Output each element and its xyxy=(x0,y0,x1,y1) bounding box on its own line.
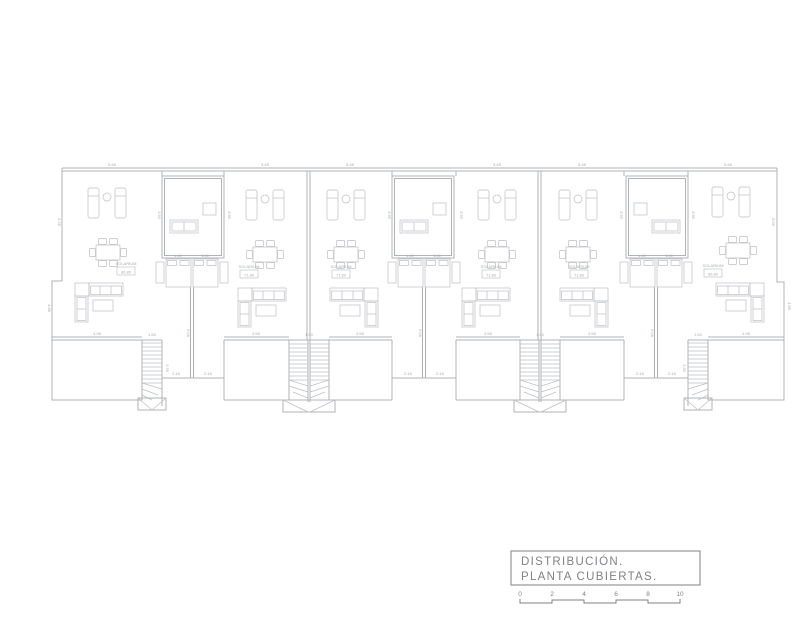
sofa-set-unit-4 xyxy=(462,288,510,327)
dining-set-unit-6 xyxy=(720,237,757,265)
dimension-label: 3.58 xyxy=(484,331,493,336)
dimension-label: 3.95 xyxy=(157,211,162,220)
scale-tick-10: 10 xyxy=(676,591,684,598)
dimension-label: 3.35 xyxy=(682,364,687,373)
stairs-units-4-5 xyxy=(514,340,566,412)
dimension-label: 2.15 xyxy=(668,371,677,376)
dimension-label: 4.98 xyxy=(742,331,751,336)
scale-tick-6: 6 xyxy=(614,591,618,598)
dimension-label: 5.08 xyxy=(418,329,423,338)
dimension-label: 4.88 xyxy=(47,304,52,313)
sofa-set-unit-1 xyxy=(75,283,123,322)
dimension-label: 5.08 xyxy=(650,329,655,338)
dimension-label: 5.48 xyxy=(108,162,117,167)
dimension-label: 1.50 xyxy=(694,332,703,337)
tower-a xyxy=(162,176,224,258)
dimension-label: 2.15 xyxy=(404,371,413,376)
dimension-label: 2.15 xyxy=(636,371,645,376)
svg-text:71.80: 71.80 xyxy=(486,273,497,278)
stairs-unit-6 xyxy=(684,340,712,410)
dimension-label: 4.88 xyxy=(787,302,792,311)
dimension-label: 5.48 xyxy=(493,162,502,167)
dimension-label: 3.95 xyxy=(387,211,392,220)
sun-loungers-unit-6 xyxy=(712,187,750,217)
scale-tick-0: 0 xyxy=(518,591,522,598)
dimension-label: 1.40 xyxy=(406,253,415,258)
solarium-label-unit-5: SOLARIUM 71.80 xyxy=(569,264,590,278)
sofa-set-unit-3 xyxy=(330,288,378,327)
sun-loungers-unit-4 xyxy=(478,190,516,220)
dimension-label: 2.15 xyxy=(172,371,181,376)
svg-text:86.80: 86.80 xyxy=(708,272,719,277)
dimension-label: 5.05 xyxy=(771,218,776,227)
sun-loungers-unit-5 xyxy=(559,190,597,220)
dimension-label: 3.95 xyxy=(459,211,464,220)
dim-layer: 5.485.485.485.485.485.481.401.401.401.40… xyxy=(47,162,792,376)
dimension-label: 5.48 xyxy=(346,162,355,167)
dimension-label: 4.98 xyxy=(93,331,102,336)
dimension-label: 5.08 xyxy=(186,329,191,338)
svg-text:71.80: 71.80 xyxy=(574,273,585,278)
scale-tick-8: 8 xyxy=(646,591,650,598)
dimension-label: 3.35 xyxy=(165,364,170,373)
svg-text:SOLARIUM: SOLARIUM xyxy=(239,264,260,269)
svg-text:SOLARIUM: SOLARIUM xyxy=(481,264,502,269)
svg-text:71.80: 71.80 xyxy=(244,273,255,278)
dimension-label: 3.58 xyxy=(356,331,365,336)
dimension-label: 5.48 xyxy=(724,162,733,167)
dimension-label: 2.15 xyxy=(436,371,445,376)
dimension-label: 3.58 xyxy=(252,331,261,336)
dimension-label: 1.50 xyxy=(148,332,157,337)
floor-plan-page: SOLARIUM 86.80 SOLARIUM 71.80 SOLARIUM 7… xyxy=(0,0,800,640)
dimension-label: 1.50 xyxy=(536,332,545,337)
solarium-label-unit-3: SOLARIUM 71.80 xyxy=(331,264,352,278)
dimension-label: 1.40 xyxy=(638,253,647,258)
solarium-label-unit-6: SOLARIUM 86.80 xyxy=(703,263,724,277)
solarium-label-unit-2: SOLARIUM 71.80 xyxy=(239,264,260,278)
dimension-label: 1.40 xyxy=(433,253,442,258)
sofa-set-unit-6 xyxy=(716,283,764,322)
dimension-label: 5.48 xyxy=(578,162,587,167)
sun-loungers-unit-2 xyxy=(246,190,284,220)
dimension-label: 3.95 xyxy=(227,211,232,220)
stairs-unit-1 xyxy=(138,340,166,410)
solarium-label-unit-1: SOLARIUM 86.80 xyxy=(116,261,137,275)
dimension-label: 2.15 xyxy=(204,371,213,376)
sofa-set-unit-2 xyxy=(238,288,286,327)
svg-text:SOLARIUM: SOLARIUM xyxy=(703,263,724,268)
svg-text:86.80: 86.80 xyxy=(121,270,132,275)
dimension-label: 1.40 xyxy=(665,253,674,258)
dimension-label: 3.58 xyxy=(588,331,597,336)
scale-bar: 0 2 4 6 8 10 xyxy=(518,591,684,603)
floor-plan-drawing: SOLARIUM 86.80 SOLARIUM 71.80 SOLARIUM 7… xyxy=(0,0,800,640)
tower-c xyxy=(626,176,688,258)
tower-b xyxy=(392,176,454,258)
dimension-label: 3.36 xyxy=(57,218,62,227)
stair-towers xyxy=(156,176,692,287)
svg-text:SOLARIUM: SOLARIUM xyxy=(116,261,137,266)
lower-terrace-2 xyxy=(224,337,289,400)
sun-loungers-unit-1 xyxy=(88,188,126,218)
svg-text:71.80: 71.80 xyxy=(336,273,347,278)
sun-beds-c xyxy=(620,259,692,287)
sun-beds-a xyxy=(156,259,228,287)
svg-text:SOLARIUM: SOLARIUM xyxy=(569,264,590,269)
lower-terrace-6 xyxy=(708,337,784,400)
title-line-1: DISTRIBUCIÓN. xyxy=(521,555,624,568)
scale-tick-2: 2 xyxy=(550,591,554,598)
scale-tick-4: 4 xyxy=(582,591,586,598)
dimension-label: 1.50 xyxy=(305,332,314,337)
dimension-label: 3.95 xyxy=(619,211,624,220)
title-line-2: PLANTA CUBIERTAS. xyxy=(521,571,658,583)
lower-terrace-4 xyxy=(456,337,520,400)
dimension-label: 1.40 xyxy=(201,253,210,258)
title-block: DISTRIBUCIÓN. PLANTA CUBIERTAS. 0 2 4 6 … xyxy=(511,551,700,603)
lower-terrace-1 xyxy=(52,337,142,400)
dimension-label: 3.95 xyxy=(691,211,696,220)
stairs-units-2-3 xyxy=(283,340,335,412)
sun-beds-b xyxy=(388,259,460,287)
sun-loungers-unit-3 xyxy=(327,190,365,220)
svg-text:SOLARIUM: SOLARIUM xyxy=(331,264,352,269)
solarium-label-unit-4: SOLARIUM 71.80 xyxy=(481,264,502,278)
sofa-set-unit-5 xyxy=(560,288,608,327)
dimension-label: 1.40 xyxy=(174,253,183,258)
dimension-label: 5.48 xyxy=(261,162,270,167)
lower-terrace-3 xyxy=(329,337,392,400)
lower-terrace-5 xyxy=(560,337,624,400)
